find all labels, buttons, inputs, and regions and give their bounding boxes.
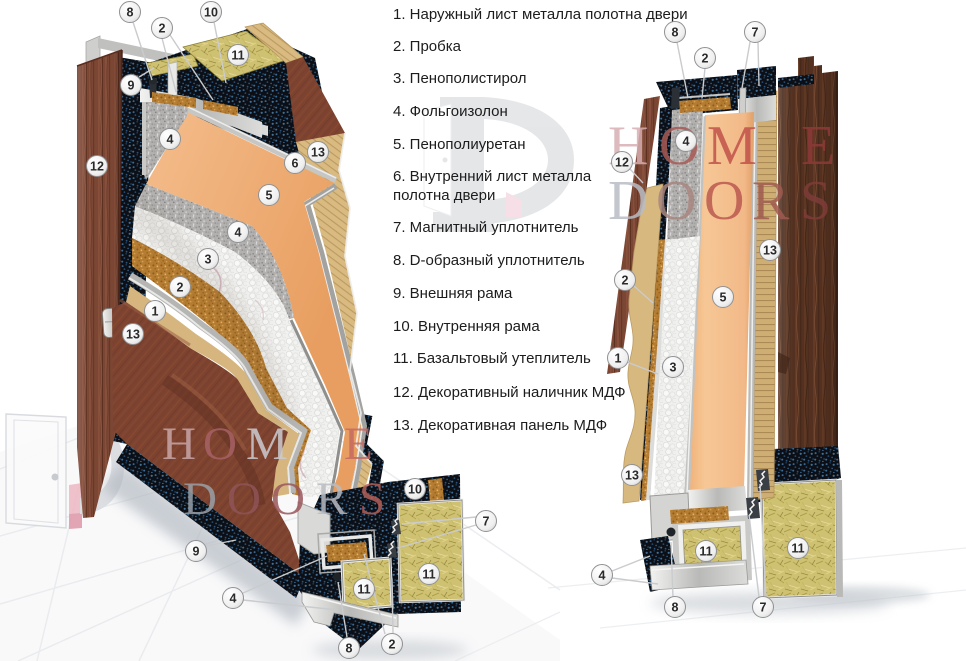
svg-text:10: 10 — [408, 483, 422, 497]
svg-text:13. Декоративная панель МДФ: 13. Декоративная панель МДФ — [393, 417, 607, 434]
svg-text:9: 9 — [193, 545, 200, 559]
svg-text:6: 6 — [292, 157, 299, 171]
svg-text:R: R — [316, 473, 348, 525]
svg-text:9: 9 — [128, 79, 135, 93]
svg-text:11: 11 — [231, 49, 244, 63]
svg-text:4: 4 — [235, 226, 242, 240]
svg-text:8. D-образный уплотнитель: 8. D-образный уплотнитель — [393, 252, 585, 269]
svg-text:E: E — [801, 115, 835, 177]
svg-text:13: 13 — [625, 469, 639, 483]
svg-text:8: 8 — [672, 601, 679, 615]
svg-text:4: 4 — [167, 133, 174, 147]
svg-text:4: 4 — [683, 135, 690, 149]
svg-text:2: 2 — [177, 281, 184, 295]
svg-text:O: O — [656, 170, 696, 232]
svg-text:13: 13 — [763, 244, 777, 258]
svg-text:5: 5 — [266, 189, 273, 203]
svg-text:6. Внутренний лист металла: 6. Внутренний лист металла — [393, 168, 592, 185]
svg-text:O: O — [271, 473, 305, 525]
svg-text:M: M — [707, 115, 757, 177]
svg-text:13: 13 — [311, 146, 325, 160]
svg-text:8: 8 — [346, 642, 353, 656]
svg-text:3: 3 — [670, 361, 677, 375]
svg-text:8: 8 — [672, 26, 679, 40]
svg-text:8: 8 — [127, 6, 134, 20]
svg-text:O: O — [704, 170, 744, 232]
svg-text:O: O — [227, 473, 261, 525]
svg-text:11: 11 — [357, 583, 370, 597]
svg-text:1: 1 — [615, 352, 622, 366]
svg-text:R: R — [752, 170, 790, 232]
svg-text:2. Пробка: 2. Пробка — [393, 38, 462, 55]
svg-text:4: 4 — [230, 592, 237, 606]
svg-text:12: 12 — [90, 160, 104, 174]
svg-text:D: D — [608, 170, 648, 232]
svg-text:5: 5 — [720, 291, 727, 305]
svg-text:1: 1 — [152, 305, 159, 319]
svg-text:12: 12 — [615, 156, 629, 170]
svg-text:3: 3 — [205, 253, 212, 267]
svg-text:7. Магнитный уплотнитель: 7. Магнитный уплотнитель — [393, 219, 579, 236]
svg-text:D: D — [183, 473, 217, 525]
svg-text:2: 2 — [622, 274, 629, 288]
svg-text:5. Пенополиуретан: 5. Пенополиуретан — [393, 136, 526, 153]
svg-text:O: O — [203, 418, 237, 470]
svg-text:1. Наружный лист металла полот: 1. Наружный лист металла полотна двери — [393, 6, 688, 23]
svg-text:7: 7 — [752, 26, 759, 40]
svg-text:S: S — [359, 473, 385, 525]
svg-text:13: 13 — [126, 328, 140, 342]
svg-text:9. Внешняя рама: 9. Внешняя рама — [393, 285, 513, 302]
svg-text:M: M — [246, 418, 288, 470]
svg-text:12. Декоративный наличник МДФ: 12. Декоративный наличник МДФ — [393, 384, 625, 401]
svg-text:S: S — [800, 170, 831, 232]
svg-text:11. Базальтовый утеплитель: 11. Базальтовый утеплитель — [393, 350, 591, 367]
svg-text:H: H — [162, 418, 196, 470]
svg-text:2: 2 — [389, 638, 396, 652]
svg-text:7: 7 — [760, 601, 767, 615]
svg-text:11: 11 — [791, 542, 804, 556]
svg-text:10: 10 — [204, 6, 218, 20]
svg-text:4: 4 — [599, 569, 606, 583]
svg-text:полотна двери: полотна двери — [393, 187, 495, 204]
svg-text:10. Внутренняя рама: 10. Внутренняя рама — [393, 318, 540, 335]
svg-text:2: 2 — [702, 52, 709, 66]
svg-text:4. Фольгоизолон: 4. Фольгоизолон — [393, 103, 508, 120]
svg-text:11: 11 — [422, 568, 435, 582]
svg-text:7: 7 — [483, 515, 490, 529]
svg-text:11: 11 — [699, 545, 712, 559]
svg-text:2: 2 — [159, 22, 166, 36]
svg-text:3. Пенополистирол: 3. Пенополистирол — [393, 70, 527, 87]
svg-text:E: E — [344, 418, 373, 470]
